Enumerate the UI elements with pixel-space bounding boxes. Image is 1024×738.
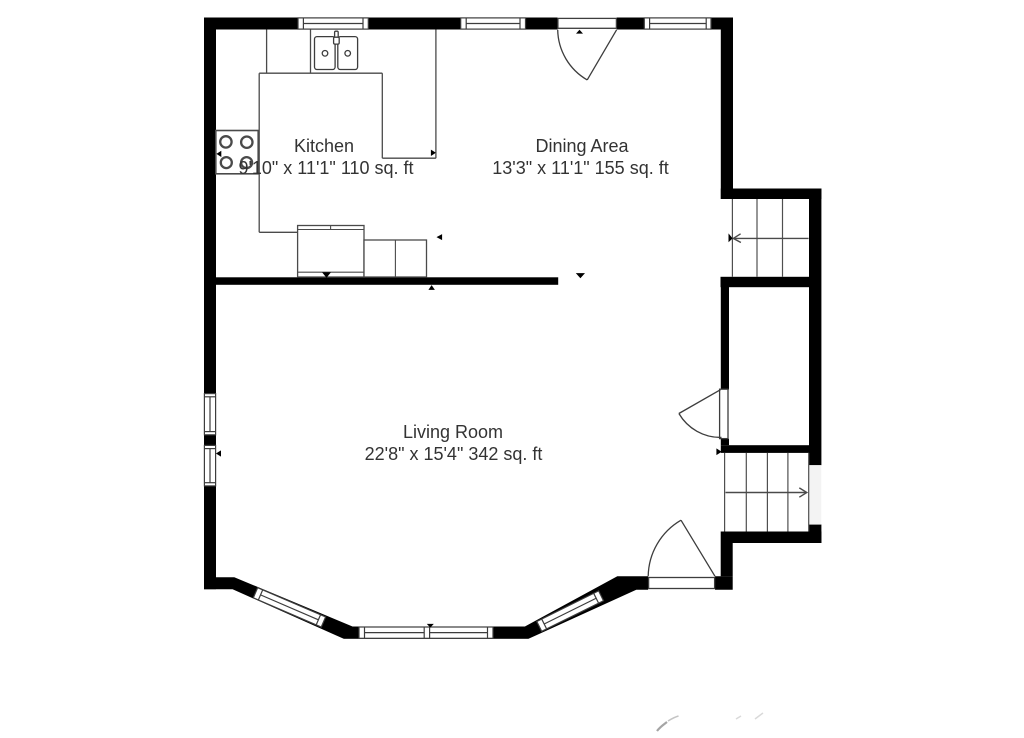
svg-text:Dining Area: Dining Area [535,136,629,156]
svg-text:Kitchen: Kitchen [294,136,354,156]
svg-text:22'8" x 15'4" 342 sq. ft: 22'8" x 15'4" 342 sq. ft [365,444,543,464]
svg-text:9'10" x 11'1" 110 sq. ft: 9'10" x 11'1" 110 sq. ft [238,158,413,178]
svg-text:13'3" x 11'1" 155 sq. ft: 13'3" x 11'1" 155 sq. ft [492,158,668,178]
svg-text:Living Room: Living Room [403,422,503,442]
